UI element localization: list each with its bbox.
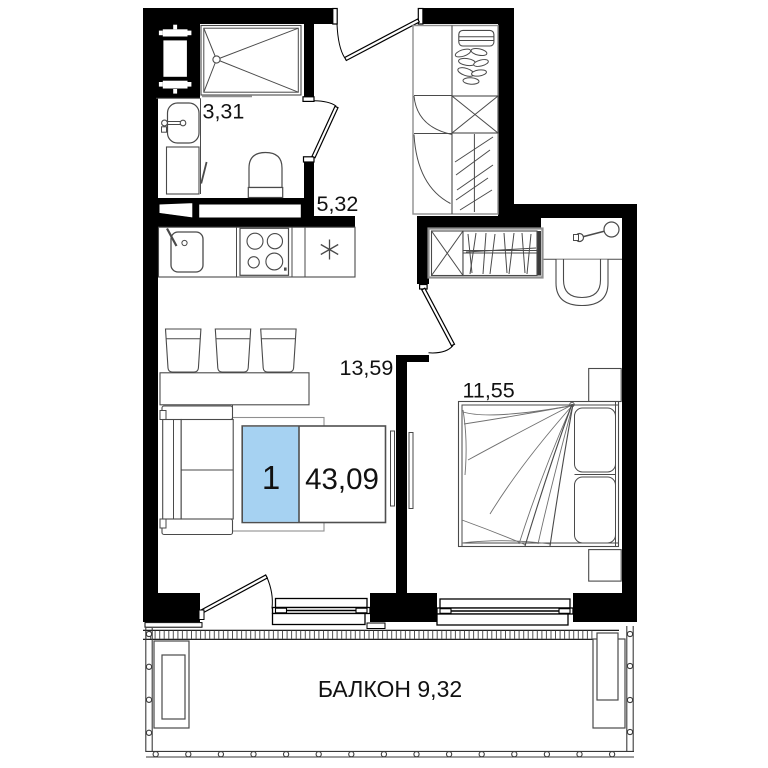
svg-text:БАЛКОН 9,32: БАЛКОН 9,32 [318, 676, 462, 702]
svg-text:13,59: 13,59 [340, 356, 394, 380]
svg-text:5,32: 5,32 [317, 192, 359, 216]
svg-text:1: 1 [262, 459, 280, 496]
svg-text:3,31: 3,31 [203, 100, 245, 124]
svg-text:43,09: 43,09 [305, 463, 379, 496]
svg-text:11,55: 11,55 [463, 379, 515, 403]
